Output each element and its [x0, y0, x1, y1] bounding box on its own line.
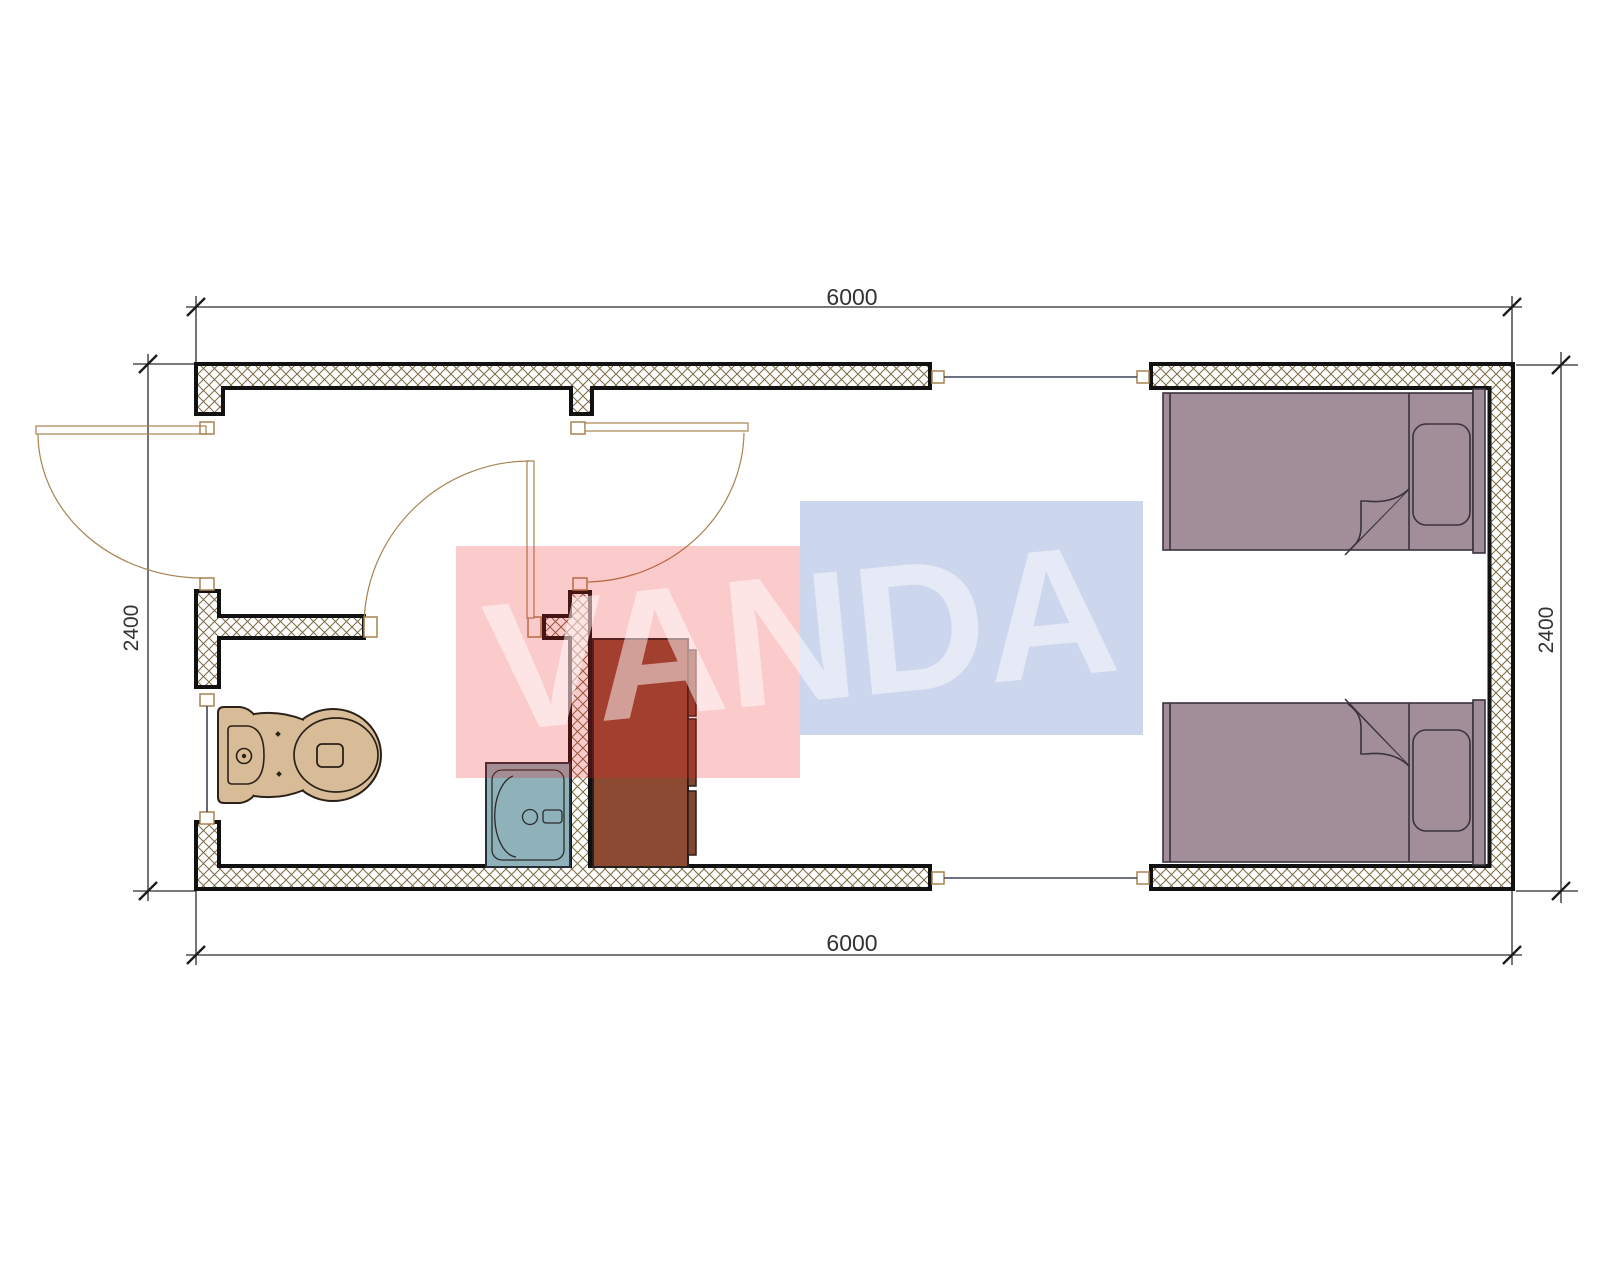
svg-text:2400: 2400 — [120, 605, 143, 652]
svg-text:2400: 2400 — [1535, 607, 1558, 654]
svg-text:6000: 6000 — [826, 284, 877, 310]
svg-text:6000: 6000 — [826, 930, 877, 956]
